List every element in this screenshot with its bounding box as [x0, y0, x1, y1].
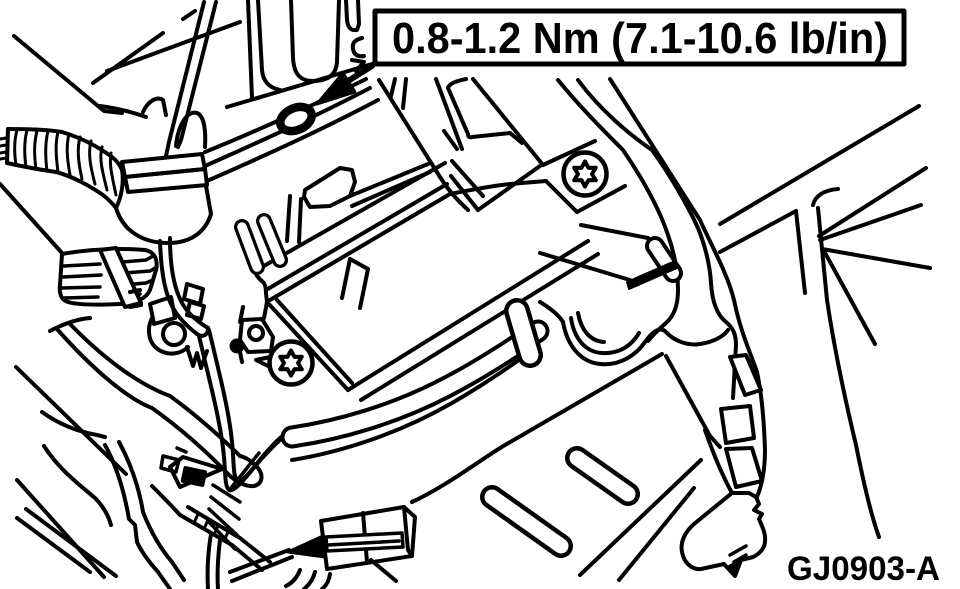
svg-text:GJ0903-A: GJ0903-A: [787, 550, 940, 588]
svg-text:0.8-1.2 Nm (7.1-10.6 lb/in): 0.8-1.2 Nm (7.1-10.6 lb/in): [392, 14, 888, 63]
